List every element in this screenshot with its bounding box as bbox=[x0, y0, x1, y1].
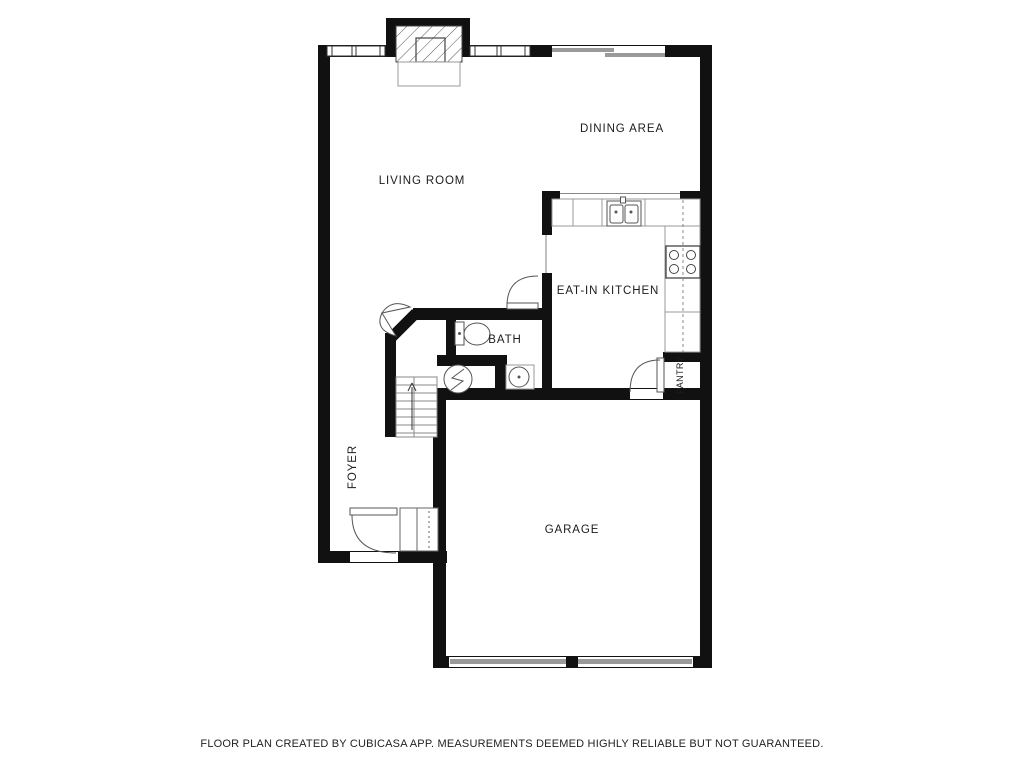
room-label-living-room: LIVING ROOM bbox=[379, 175, 466, 187]
entry-closet-symbol bbox=[400, 508, 438, 551]
window-right-symbol bbox=[470, 46, 530, 56]
room-label-foyer: FOYER bbox=[347, 445, 359, 489]
sliding-door-symbol bbox=[552, 46, 665, 57]
wall-bath-top bbox=[413, 308, 552, 320]
entry-door-symbol bbox=[350, 508, 398, 562]
fireplace-symbol bbox=[386, 18, 470, 86]
kitchen-sink-symbol bbox=[607, 197, 641, 226]
wall-bath-sink-left bbox=[495, 355, 506, 400]
room-label-garage: GARAGE bbox=[545, 524, 600, 536]
room-label-pantry: PANTRY bbox=[675, 356, 685, 394]
disclaimer-text: FLOOR PLAN CREATED BY CUBICASA APP. MEAS… bbox=[200, 738, 823, 750]
kitchen-entry-door-symbol bbox=[507, 235, 546, 309]
wall-hall-bottom bbox=[433, 388, 712, 400]
wall-kitchen-left-lower bbox=[542, 273, 552, 400]
staircase-symbol bbox=[396, 377, 437, 437]
bath-sink-symbol bbox=[506, 365, 534, 389]
wall-stair-left bbox=[385, 333, 396, 437]
floor-plan-page: DINING AREA LIVING ROOM EAT-IN KITCHEN B… bbox=[0, 0, 1024, 768]
toilet-symbol bbox=[455, 322, 490, 345]
pantry-door-symbol bbox=[630, 358, 664, 399]
window-left-symbol bbox=[327, 46, 385, 56]
wall-pantry-top-stub bbox=[663, 352, 712, 362]
floor-plan-canvas: DINING AREA LIVING ROOM EAT-IN KITCHEN B… bbox=[0, 0, 1024, 768]
hearth bbox=[398, 62, 460, 86]
water-heater-symbol bbox=[444, 365, 472, 393]
room-label-eat-in-kitchen: EAT-IN KITCHEN bbox=[557, 285, 659, 297]
wall-kitchen-left-upper bbox=[542, 191, 552, 235]
garage-door-symbol bbox=[449, 657, 693, 667]
wall-left bbox=[318, 45, 330, 563]
walls bbox=[318, 45, 712, 668]
room-label-bath: BATH bbox=[488, 334, 521, 346]
room-label-dining-area: DINING AREA bbox=[580, 123, 664, 135]
